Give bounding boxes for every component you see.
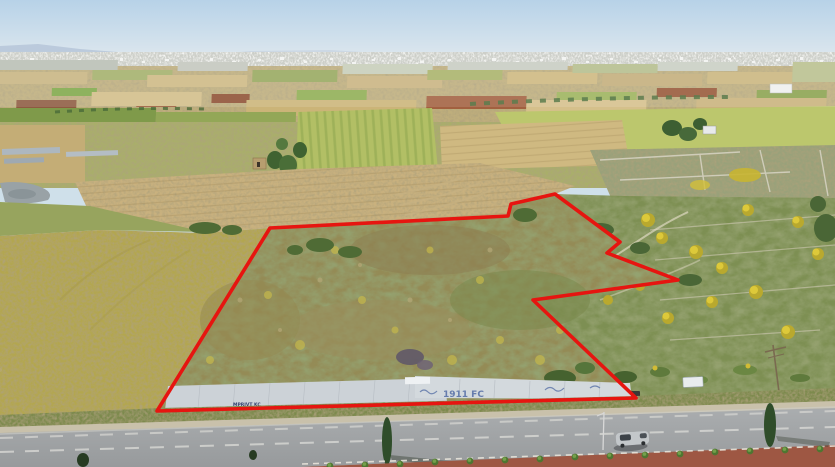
ruins-terraces [590,145,835,205]
car-windshield [620,434,631,441]
wall-white-sign [405,377,430,384]
aerial-photo-stage: MPRIVT KC 1911 FC [0,0,835,467]
graffiti-right: 1911 FC [443,390,484,400]
car-rear-window [640,433,647,438]
stone-hut [253,158,266,169]
atmospheric-haze [0,52,835,107]
white-shed [683,376,703,387]
sky [0,0,835,58]
aerial-photo: MPRIVT KC 1911 FC [0,0,835,467]
white-hut [703,126,716,134]
